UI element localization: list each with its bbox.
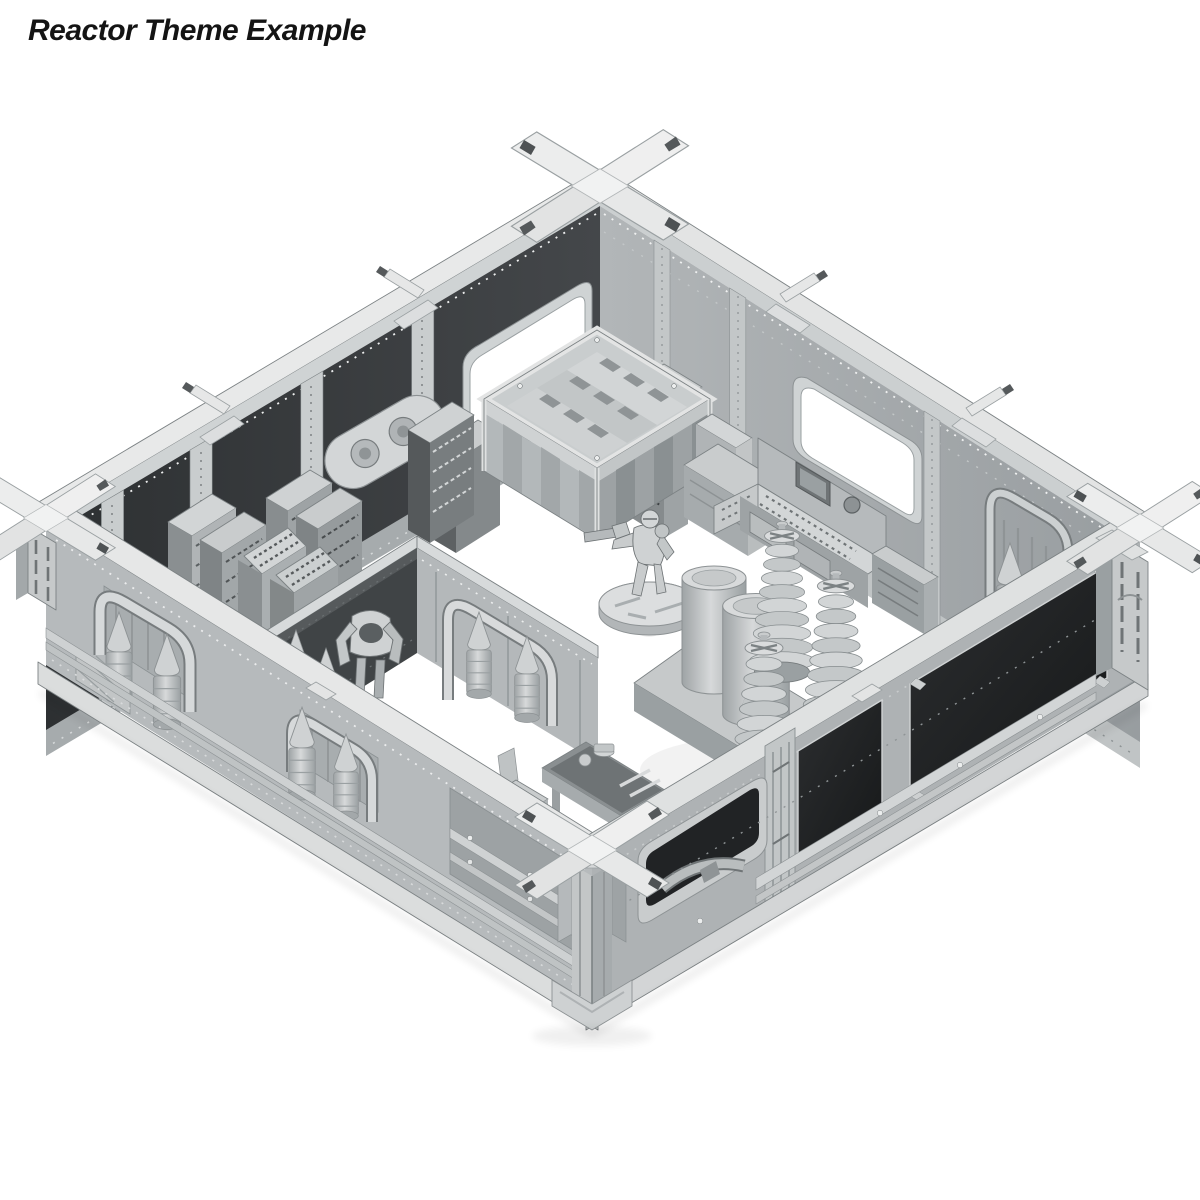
scene-3d-render <box>0 0 1200 1200</box>
partition-wall-b <box>417 536 598 763</box>
render-page: Reactor Theme Example <box>0 0 1200 1200</box>
